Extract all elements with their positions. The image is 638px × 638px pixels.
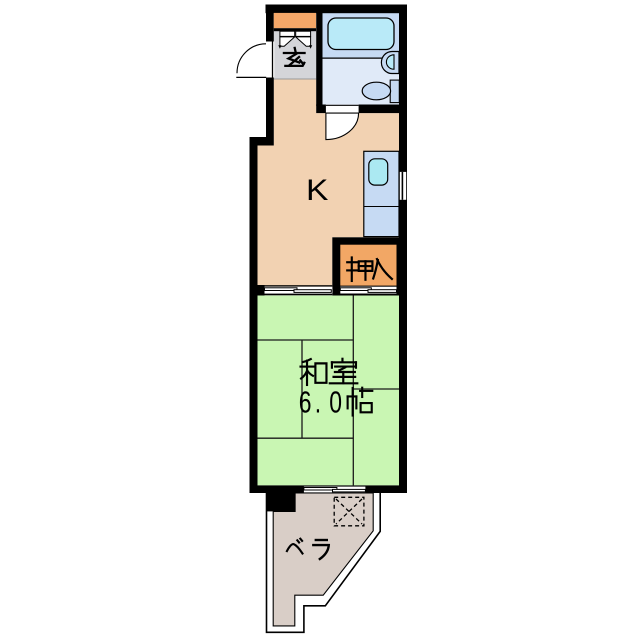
svg-text:0: 0 xyxy=(329,384,342,419)
svg-text:.: . xyxy=(315,384,321,419)
svg-text:6: 6 xyxy=(299,384,312,419)
svg-text:K: K xyxy=(306,173,328,207)
